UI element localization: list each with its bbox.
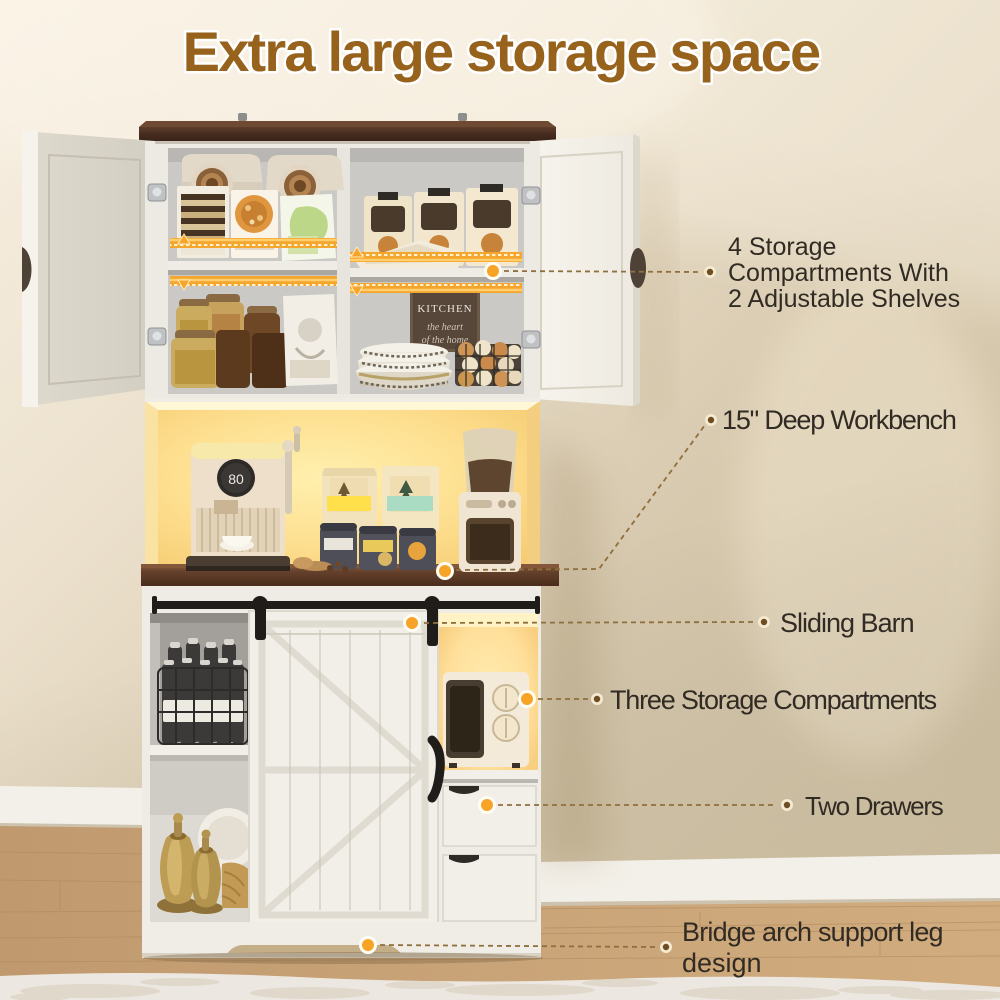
- svg-text:design: design: [682, 948, 762, 978]
- svg-text:2 Adjustable Shelves: 2 Adjustable Shelves: [728, 285, 960, 313]
- svg-text:15" Deep Workbench: 15" Deep Workbench: [722, 405, 956, 435]
- svg-text:4 Storage: 4 Storage: [728, 233, 836, 261]
- svg-text:Compartments With: Compartments With: [728, 259, 949, 287]
- svg-text:the heart: the heart: [427, 322, 463, 333]
- svg-text:80: 80: [228, 471, 244, 487]
- svg-text:KITCHEN: KITCHEN: [417, 303, 472, 315]
- svg-text:Sliding Barn: Sliding Barn: [780, 608, 914, 638]
- svg-text:Three Storage Compartments: Three Storage Compartments: [610, 685, 937, 715]
- svg-text:Extra large storage space: Extra large storage space: [183, 20, 820, 83]
- svg-text:Bridge arch support leg: Bridge arch support leg: [682, 917, 943, 947]
- svg-text:Two Drawers: Two Drawers: [805, 791, 944, 821]
